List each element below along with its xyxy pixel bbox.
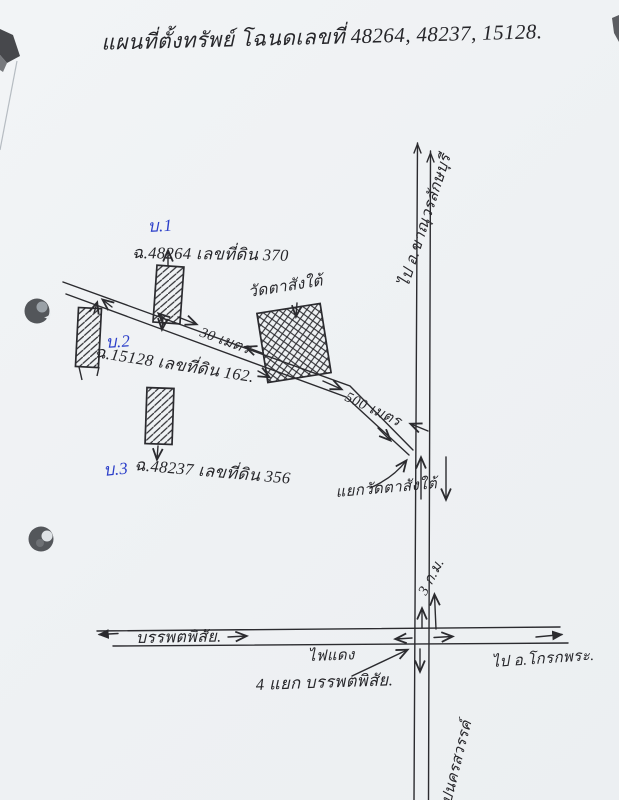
temple-shape <box>257 303 331 382</box>
road-east-label: ไป อ.โกรกพระ. <box>491 646 595 671</box>
road-south-label: ไปนครสวรรค์ <box>435 716 476 800</box>
distance-3km-label: 3 ก.ม. <box>415 556 448 599</box>
distance-500m-label: 500 เมตร <box>342 389 405 431</box>
road-west-label: บรรพตพิสัย. <box>136 629 222 647</box>
road-tick-1 <box>103 300 112 307</box>
road-west-label-arrow <box>228 636 246 637</box>
plot1-down-arrow <box>162 317 163 329</box>
road-east-end-arrow <box>536 635 562 638</box>
road-tick-4 <box>378 428 390 440</box>
page-title: แผนที่ตั้งทรัพย์ โฉนดเลขที่ 48264, 48237… <box>101 15 543 55</box>
road-west-end-arrow <box>99 634 118 635</box>
temple-down-arrow <box>296 303 297 316</box>
plot-48264-shape <box>153 265 184 324</box>
junction-bottom-label: 4 แยก บรรพตพิสัย. <box>255 670 393 694</box>
scanned-page: แผนที่ตั้งทรัพย์ โฉนดเลขที่ 48264, 48237… <box>0 0 619 800</box>
km3-arrow <box>435 595 437 629</box>
map-drawing: แผนที่ตั้งทรัพย์ โฉนดเลขที่ 48264, 48237… <box>0 0 619 800</box>
punch-hole-top <box>25 299 52 324</box>
punch-hole-bottom <box>29 527 54 552</box>
plot1-id-label: บ.1 <box>147 216 173 236</box>
d500-trail-arrow <box>411 424 428 431</box>
plot3-id-label: บ.3 <box>102 458 129 479</box>
plot3-deed-label: ฉ.48237 เลขที่ดิน 356 <box>134 453 292 488</box>
traffic-light-label: ไฟแดง <box>308 645 357 665</box>
road-north-label: ไป อ.ขาณุวรลักษบุรี <box>395 150 456 289</box>
junction-bottom-right-arrow <box>434 637 452 638</box>
plot-48237-shape <box>145 388 174 445</box>
plot1-deed-label: ฉ.48264 เลขที่ดิน 370 <box>132 241 289 265</box>
junction-bottom-left-arrow <box>396 638 412 639</box>
temple-label: วัดตาสังใต้ <box>247 271 327 301</box>
